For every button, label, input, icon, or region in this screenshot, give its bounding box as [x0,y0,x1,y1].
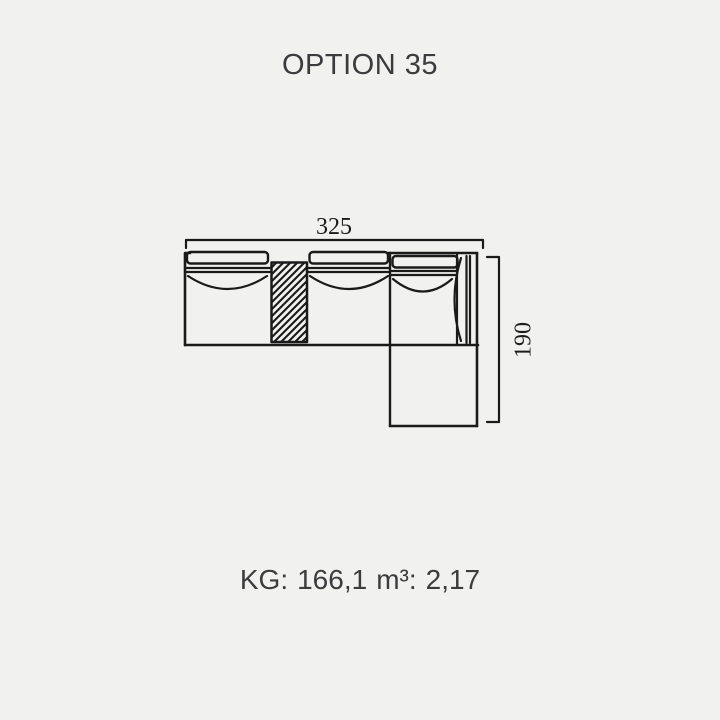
width-dimension: 325 [186,214,483,248]
seat-3-cushion-curve [393,279,452,292]
sofa-outline [185,253,478,426]
corner-connector-hatch [272,263,308,343]
seat-1-back-band [185,268,270,272]
volume-label: m³: [376,565,416,595]
width-dimension-label: 325 [316,214,352,240]
weight-value: 166,1 [297,565,367,595]
seat-3 [390,256,458,292]
depth-dimension: 190 [487,257,536,422]
specs-line: KG: 166,1 m³: 2,17 [0,565,720,595]
armrest [455,253,471,345]
seat-3-back-cushion [393,256,458,268]
seat-1-back-cushion [187,252,268,264]
sofa-top-view-diagram: 325 190 [0,0,720,720]
left-section-outline [185,253,190,345]
depth-dimension-label: 190 [510,322,536,358]
seat-1-cushion-curve [188,276,267,289]
seat-3-back-band [390,271,457,275]
seat-2 [307,252,390,289]
seat-2-cushion-curve [310,276,388,289]
weight-label: KG: [240,565,288,595]
seat-2-back-band [307,268,390,272]
seat-2-back-cushion [310,252,389,264]
armrest-rail-lines [467,256,471,343]
seat-1 [185,252,270,289]
volume-value: 2,17 [426,565,481,595]
